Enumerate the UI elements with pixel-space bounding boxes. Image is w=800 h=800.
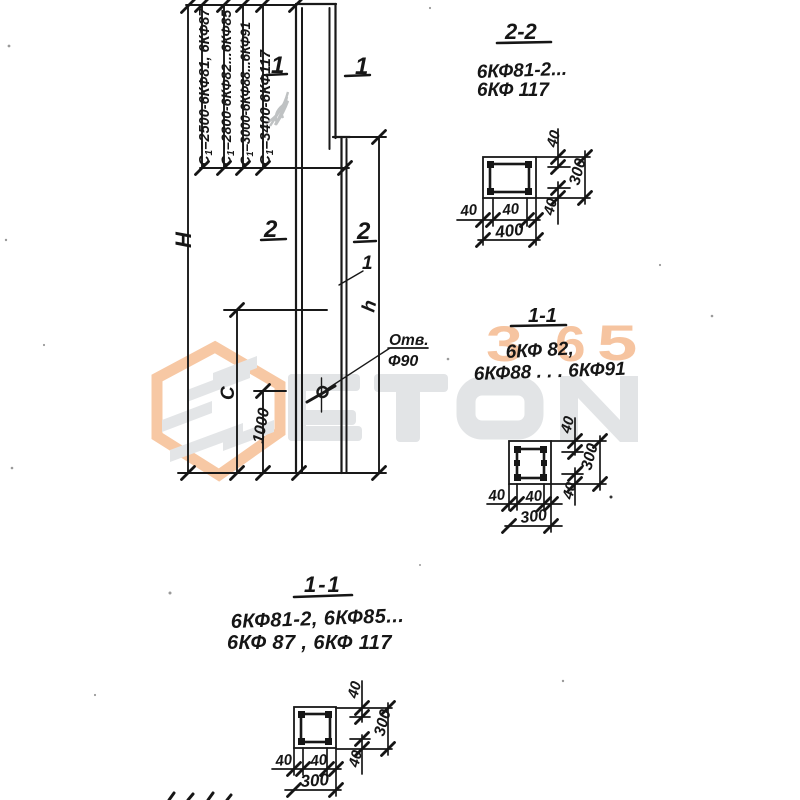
svg-text:1-1: 1-1 xyxy=(528,305,557,327)
svg-text:1-1: 1-1 xyxy=(304,572,342,597)
svg-text:300: 300 xyxy=(300,770,330,791)
svg-text:40: 40 xyxy=(459,201,479,220)
svg-text:Н: Н xyxy=(171,231,196,248)
svg-text:40: 40 xyxy=(487,486,507,505)
svg-text:6КФ 117: 6КФ 117 xyxy=(477,80,550,101)
svg-text:6КФ 87 , 6КФ 117: 6КФ 87 , 6КФ 117 xyxy=(227,632,392,654)
svg-text:300: 300 xyxy=(519,507,548,527)
svg-text:400: 400 xyxy=(493,220,525,243)
svg-text:40: 40 xyxy=(524,487,544,506)
svg-text:40: 40 xyxy=(501,200,521,219)
svg-text:С1=2500-6КФ81, 6КФ87: С1=2500-6КФ81, 6КФ87 xyxy=(197,8,215,166)
svg-text:С1=3000-6КФ88...6КФ91: С1=3000-6КФ88...6КФ91 xyxy=(238,22,255,166)
svg-text:Отв.: Отв. xyxy=(389,332,429,349)
svg-text:2-2: 2-2 xyxy=(504,19,538,44)
svg-text:С: С xyxy=(218,386,239,400)
svg-text:Ф90: Ф90 xyxy=(388,353,418,370)
svg-text:40: 40 xyxy=(274,751,294,770)
svg-text:40: 40 xyxy=(309,751,329,770)
svg-text:6КФ 82,: 6КФ 82, xyxy=(505,338,574,363)
